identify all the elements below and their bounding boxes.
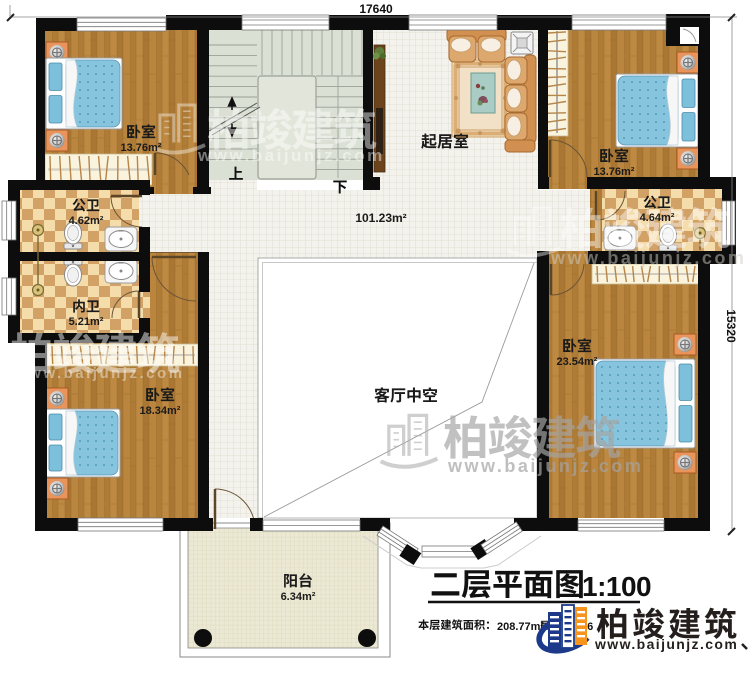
svg-text:6.34m²: 6.34m²: [281, 591, 316, 603]
svg-text:23.54m²: 23.54m²: [557, 356, 598, 368]
svg-text:4.62m²: 4.62m²: [69, 215, 104, 227]
svg-text:15320: 15320: [724, 309, 738, 343]
svg-text:101.23m²: 101.23m²: [355, 211, 406, 225]
svg-text:www.baijunjz.com: www.baijunjz.com: [197, 146, 385, 165]
svg-text:1:100: 1:100: [582, 571, 651, 602]
svg-text:13.76m²: 13.76m²: [594, 166, 635, 178]
svg-text:www.baijunjz.com: www.baijunjz.com: [447, 456, 643, 476]
svg-text:13.76m²: 13.76m²: [121, 142, 162, 154]
svg-text:208.77m²: 208.77m²: [497, 621, 544, 633]
svg-text:5.21m²: 5.21m²: [69, 316, 104, 328]
svg-text:www.baijunjz.com: www.baijunjz.com: [594, 636, 738, 652]
svg-text:www.baijunjz.com: www.baijunjz.com: [14, 365, 184, 382]
svg-text:17640: 17640: [359, 2, 393, 16]
svg-text:18.34m²: 18.34m²: [140, 405, 181, 417]
svg-text:4.64m²: 4.64m²: [640, 212, 675, 224]
svg-text:www.baijunjz.com: www.baijunjz.com: [550, 248, 746, 268]
